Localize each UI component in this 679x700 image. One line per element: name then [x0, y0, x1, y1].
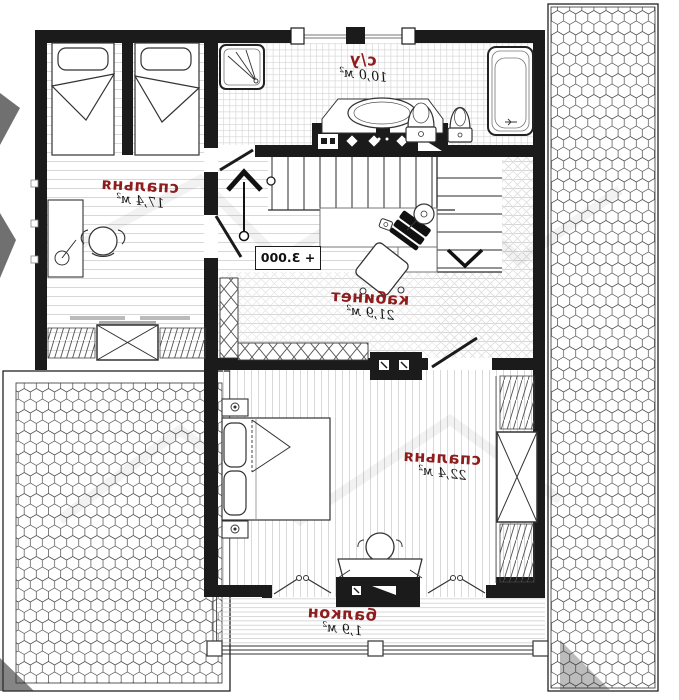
bathtub — [488, 47, 533, 135]
window-top — [291, 27, 415, 44]
x-partition-vertical — [220, 278, 238, 358]
roof-bottom-left — [3, 371, 230, 691]
dresser — [370, 352, 422, 380]
wardrobe-bedroom2 — [496, 376, 537, 583]
desk-bedroom1 — [48, 200, 83, 277]
nightstand-bottom — [222, 521, 248, 538]
double-bed — [222, 418, 330, 520]
roof-right — [548, 4, 658, 691]
single-bed-1 — [52, 43, 114, 155]
floor-plan: спальня 17,4 м² с/у 10,0 м² кабинет 21,9… — [0, 0, 679, 700]
floor-plan-drawing — [0, 0, 679, 700]
level-mark: + 3.000 — [255, 246, 321, 270]
nightstand-top — [222, 399, 248, 416]
x-partition-horizontal — [238, 343, 368, 360]
shower — [220, 45, 264, 89]
single-bed-2 — [135, 43, 199, 155]
